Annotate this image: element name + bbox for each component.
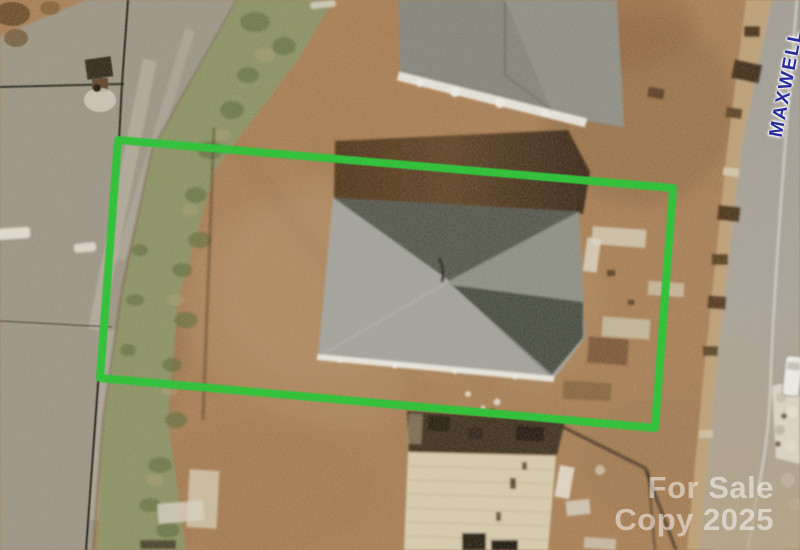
watermark-line2: Copy 2025 [614, 504, 774, 536]
aerial-photo: MAXWELL For Sale Copy 2025 [0, 0, 800, 550]
watermark: For Sale Copy 2025 [614, 472, 774, 536]
watermark-line1: For Sale [614, 472, 774, 504]
photo-grain [0, 0, 800, 550]
aerial-photo-svg [0, 0, 800, 550]
